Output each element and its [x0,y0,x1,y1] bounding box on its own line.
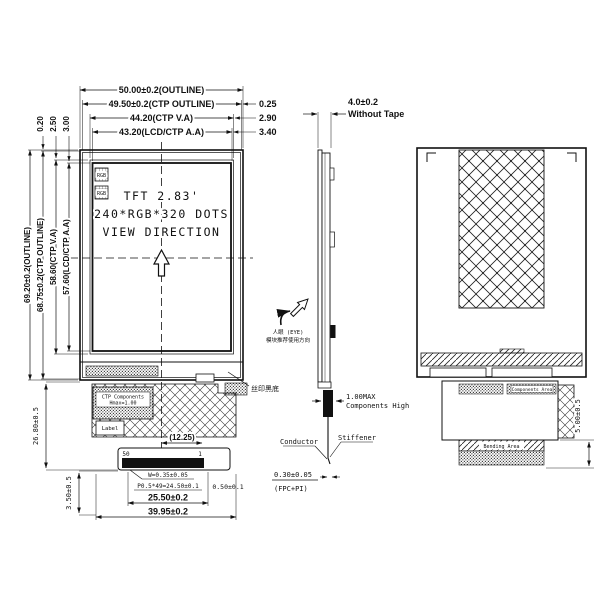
fpc-connector: 50 1 [118,448,230,470]
dim-500-ext [546,440,594,468]
pin-number-right: 1 [198,451,202,458]
side-body-profile [322,153,330,383]
tft-module-drawing: RGB RGB TFT 2.83' 240*RGB*320 DOTS VIEW … [0,0,600,600]
offset-right-1: 0.25 [259,99,277,109]
dim-width-ctp-va: 44.20(CTP V.A) [130,113,193,123]
usage-note-1: 人眼 (EYE) [273,329,304,336]
back-label-hatch-area [459,150,544,308]
ctp-components-note-2: Hmax=1.00 [109,401,136,407]
dim-width-ctp-outline: 49.50±0.2(CTP OUTLINE) [109,99,215,109]
components-height-2: Components High [346,402,409,410]
dim-width-lcd-aa: 43.20(LCD/CTP A.A) [119,127,204,137]
dim-thickness-note: Without Tape [348,109,404,119]
label-box-text: Label [102,426,119,432]
offset-top-1: 0.20 [36,116,45,132]
bottom-tab [196,374,214,382]
dim-350-ext [79,471,118,515]
dim-height-outline: 69.20±0.2(OUTLINE) [23,227,32,303]
thickness-ext-lines [318,112,331,148]
components-height-1: 1.00MAX [346,393,376,401]
back-dotted-strip-left [459,384,503,394]
offset-top-2: 2.50 [49,116,58,132]
side-bump-2 [330,232,335,247]
dim-height-lcd-aa: 57.60(LCD/CTP A.A) [62,219,71,295]
front-view: RGB RGB TFT 2.83' 240*RGB*320 DOTS VIEW … [23,85,279,520]
back-bar-bump [500,349,524,353]
rgb-pixel-block-1: RGB [95,168,108,181]
rgb-label-2: RGB [97,191,106,197]
usage-note-2: 模块推荐使用方向 [266,336,310,344]
stiffener-label: Stiffener [338,434,376,442]
stiffener-leader [330,442,373,457]
dim-height-ctp-va: 58.60(CTP V.A) [49,229,58,285]
usage-direction-arrow-icon [291,299,308,316]
display-size-label: TFT 2.83' [124,189,200,203]
bottom-dotted-strip [86,366,158,376]
offset-right-3: 3.40 [259,127,277,137]
dim-pin-pitch: P0.5*49=24.50±0.1 [137,483,199,490]
back-dotted-block [459,451,544,465]
dim-pin-end: 0.50±0.1 [212,483,243,491]
back-hatch-bar [421,353,582,366]
dim-connector-height: 3.50±0.5 [65,476,73,510]
side-glass-profile [318,150,322,382]
side-view: 4.0±0.2 Without Tape 人眼 (EYE) 模块推荐使用方向 1… [266,97,409,493]
side-bottom-foot [318,382,331,388]
view-direction-label: VIEW DIRECTION [103,225,221,239]
connector-pins [122,458,204,468]
engineering-drawing-page: RGB RGB TFT 2.83' 240*RGB*320 DOTS VIEW … [0,0,600,600]
back-xhatch-strip [558,385,574,438]
dim-thickness: 4.0±0.2 [348,97,378,107]
back-view: Components Area Bending Area 5.00±0.5 [417,148,594,468]
dim-fpc-thickness: 0.30±0.05 [274,471,312,479]
label-box: Label [96,421,124,435]
dim-pin-width: W=0.35±0.05 [148,472,188,479]
conductor-leader [283,446,327,459]
dim-width-outline: 50.00±0.2(OUTLINE) [119,85,204,95]
rgb-pixel-block-2: RGB [95,186,108,199]
side-fpc-tail [328,417,330,464]
components-area-label: Components Area [512,387,553,393]
fpc-material-note: (FPC+PI) [274,485,308,493]
rotation-arrow-icon [281,311,290,325]
dim-12-25: (12.25) [169,433,195,442]
side-component-block [323,390,333,417]
offset-top-3: 3.00 [62,116,71,132]
back-bottom-strip-right [492,368,552,377]
pin-number-left: 50 [122,451,130,458]
offset-right-2: 2.90 [259,113,277,123]
dim-fpc-width: 39.95±0.2 [148,507,188,517]
dim-fpc-length: 26.80±0.5 [32,407,40,445]
back-bottom-strip-left [430,368,486,377]
side-bump-3 [331,325,336,338]
ctp-components-box: CTP Components Hmax=1.00 [93,387,153,419]
dim-height-ctp-outline: 68.75±0.2(CTP OUTLINE) [36,218,45,312]
rgb-label-1: RGB [97,173,106,179]
dim-bending: 5.00±0.5 [574,399,582,433]
conductor-label: Conductor [280,438,318,446]
side-bump-1 [330,168,334,180]
silk-print-note: 丝印黑底 [251,384,279,393]
display-resolution-label: 240*RGB*320 DOTS [94,207,229,221]
dim-connector-width: 25.50±0.2 [148,493,188,503]
bending-area-label: Bending Area [483,444,519,450]
